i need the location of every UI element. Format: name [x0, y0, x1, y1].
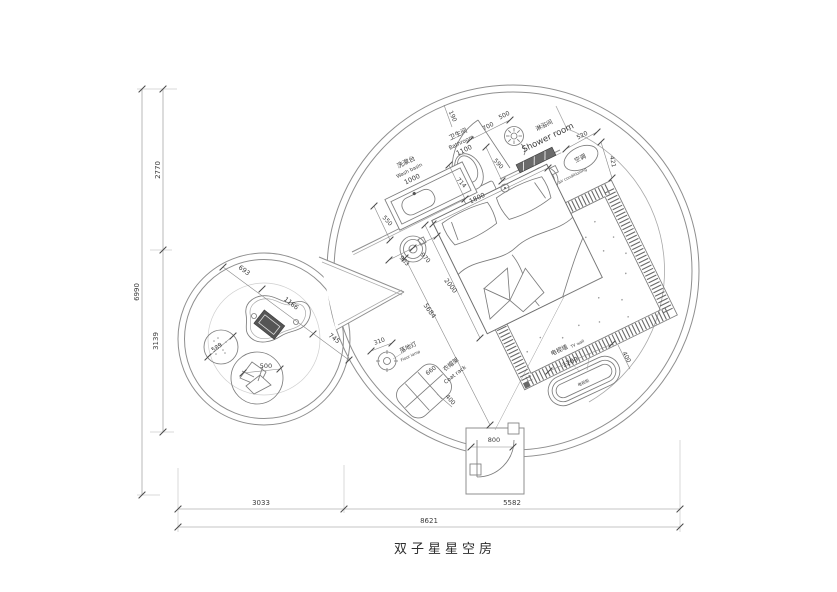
dim-left-lower: 3139	[152, 332, 160, 350]
drawing-title: 双子星星空房	[394, 541, 496, 557]
dim-bed-len: 2000	[442, 277, 458, 295]
ac-label-cn: 空调	[573, 152, 587, 164]
dim-overall-width: 8621	[420, 517, 438, 525]
door-post	[508, 423, 519, 434]
dim-entry-door: 800	[488, 436, 500, 444]
dim-shower-depth: 421	[608, 155, 617, 168]
lounge-kidney-table	[246, 296, 311, 342]
dim-lounge-gap: 745	[327, 331, 342, 345]
dim-shower-side: 520	[576, 130, 590, 142]
door-post	[470, 464, 481, 475]
ac-label-en: air conditioning	[557, 166, 588, 184]
corridor-opening	[319, 257, 404, 330]
tv-wall-label-cn: 电视墙	[549, 343, 569, 358]
dim-bed-off2: 970	[419, 251, 432, 264]
dim-coat-dep: 400	[444, 393, 457, 406]
dim-lounge-table: 1166	[282, 295, 300, 311]
floorplan-canvas: 3033 5582 8621 2770 3139 6990 693 1166 7…	[0, 0, 837, 592]
dim-seat-dia: 500	[260, 362, 272, 370]
floorplan-svg: 3033 5582 8621 2770 3139 6990 693 1166 7…	[0, 0, 837, 592]
dim-bath-door: 500	[498, 110, 512, 122]
floor-lamp	[376, 350, 404, 372]
table-tray	[254, 310, 285, 339]
dim-overall-height: 6990	[133, 283, 141, 301]
dim-lamp-dia: 310	[373, 336, 386, 347]
dim-stool-dia: 589	[210, 342, 224, 354]
dimension-lines	[137, 86, 683, 532]
dim-left-upper: 2770	[154, 161, 162, 179]
dim-bottom-left: 3033	[252, 499, 270, 507]
dim-washbasin-side: 550	[381, 214, 394, 227]
dim-lounge-off: 693	[237, 263, 252, 277]
dim-tv-dep: 400	[621, 351, 633, 365]
lounge-seat	[231, 352, 283, 404]
dim-bottom-right: 5582	[503, 499, 521, 507]
dim-toilet-side: 590	[492, 157, 505, 170]
